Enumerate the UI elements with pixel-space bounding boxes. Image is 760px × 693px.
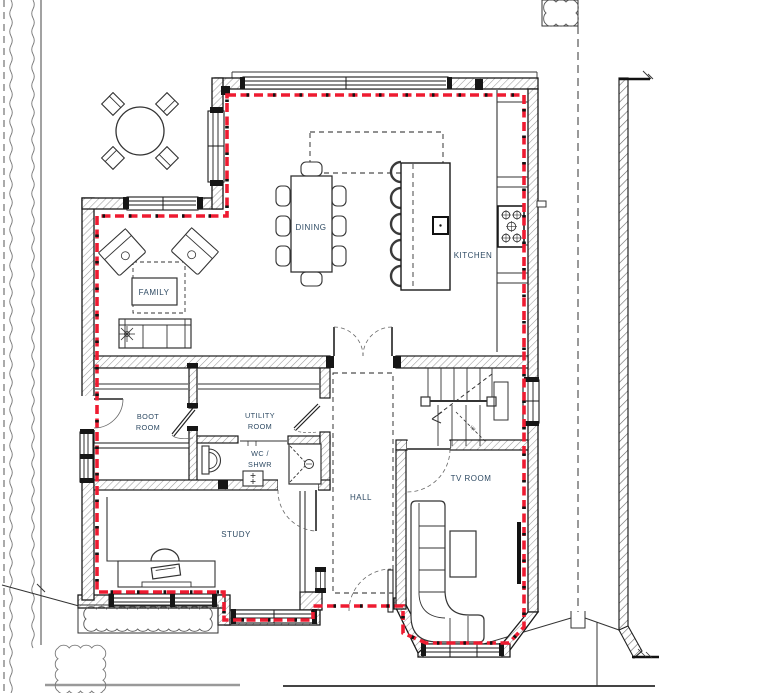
wall-mid-left (94, 356, 330, 368)
armchair (171, 228, 218, 275)
dining-chair (332, 216, 346, 236)
wall-hall-left-upper (320, 368, 330, 398)
tv-icon (517, 522, 521, 584)
label-boot-room-2: ROOM (136, 423, 160, 432)
tv-room-door (407, 441, 450, 492)
label-wc-shwr-2: SHWR (248, 460, 272, 469)
coffee-table (450, 531, 476, 577)
patio-chair (102, 93, 125, 116)
utility-hall-door (294, 404, 320, 433)
hall-double-doors (334, 327, 392, 356)
hedge-line-inner (32, 0, 35, 648)
label-utility-room-1: UTILITY (245, 411, 275, 420)
wall-tv-top-right (450, 440, 528, 450)
tree-planter (542, 0, 578, 26)
window-dining-left (208, 111, 224, 182)
label-utility-room-2: ROOM (248, 422, 272, 431)
patio-chair (156, 93, 179, 116)
ground-slope-right (585, 618, 619, 630)
wall-mid-right (396, 356, 528, 368)
wall-right-lower (528, 421, 538, 612)
newel-post (487, 397, 496, 406)
label-hall: HALL (350, 493, 372, 502)
study-door (278, 479, 318, 531)
label-dining: DINING (296, 223, 327, 232)
patio-furniture (102, 93, 179, 170)
patio-chair (156, 147, 179, 170)
floor-plan-drawing: DINING KITCHEN FAMILY BOOT ROOM UTILITY … (0, 0, 760, 693)
dining-chair (332, 186, 346, 206)
shower-icon (289, 444, 321, 484)
partition-boot-wc (94, 443, 189, 448)
dining-chair (301, 162, 322, 176)
wall-hall-tv-divider (396, 450, 406, 605)
wall-right-upper (528, 89, 538, 383)
hob-icon (498, 206, 524, 247)
patio-table (116, 107, 164, 155)
bar-stool-icon (391, 214, 401, 234)
toilet-icon (202, 446, 221, 474)
floor-plan-page: DINING KITCHEN FAMILY BOOT ROOM UTILITY … (0, 0, 760, 693)
neighbour-wall (619, 78, 628, 630)
bar-stool-icon (391, 162, 401, 182)
planting-bed (78, 605, 218, 633)
hedge-line-outer (10, 0, 13, 693)
wall-wc-left (189, 428, 197, 485)
utility-fittings (95, 384, 321, 486)
label-boot-room-1: BOOT (137, 412, 159, 421)
wall-wc-top (197, 436, 238, 443)
dining-chair (332, 246, 346, 266)
site-boundary-right (470, 0, 659, 686)
dining-chair (301, 272, 322, 286)
basin-icon (243, 471, 263, 486)
hall-ceiling-void-outline (333, 373, 393, 593)
tv-room-furniture (411, 501, 521, 642)
hall-features (333, 373, 393, 593)
bar-stool-icon (391, 266, 401, 286)
wall-boot-utility (189, 368, 197, 408)
dining-chair (276, 246, 290, 266)
label-family: FAMILY (139, 288, 170, 297)
boot-room-external-door (81, 396, 123, 430)
label-wc-shwr-1: WC / (251, 449, 269, 458)
label-kitchen: KITCHEN (454, 251, 493, 260)
wall-tv-top-left (396, 440, 407, 450)
keyboard-shelf (142, 582, 191, 587)
window-bay (423, 644, 502, 657)
window-family-top (127, 197, 198, 210)
bar-stool-icon (391, 188, 401, 208)
wall-study-east (300, 490, 305, 592)
dining-chair (276, 216, 290, 236)
newel-post (421, 397, 430, 406)
label-tv-room: TV ROOM (451, 474, 492, 483)
bar-stool-icon (391, 240, 401, 260)
study-worktop (107, 497, 213, 561)
study-furniture (107, 497, 215, 587)
gate-post (571, 611, 585, 628)
hedge-icon (84, 607, 212, 632)
label-study: STUDY (221, 530, 251, 539)
window-study (109, 594, 216, 606)
stairs (421, 368, 508, 446)
kitchen-island (391, 162, 450, 290)
patio-chair (102, 147, 125, 170)
armchair (99, 229, 146, 276)
site-boundary-left (2, 0, 655, 693)
window-top (243, 77, 448, 89)
dining-chair (276, 186, 290, 206)
desk-chair (151, 549, 179, 561)
plant-icon (119, 326, 135, 342)
wall-vent (537, 201, 546, 207)
